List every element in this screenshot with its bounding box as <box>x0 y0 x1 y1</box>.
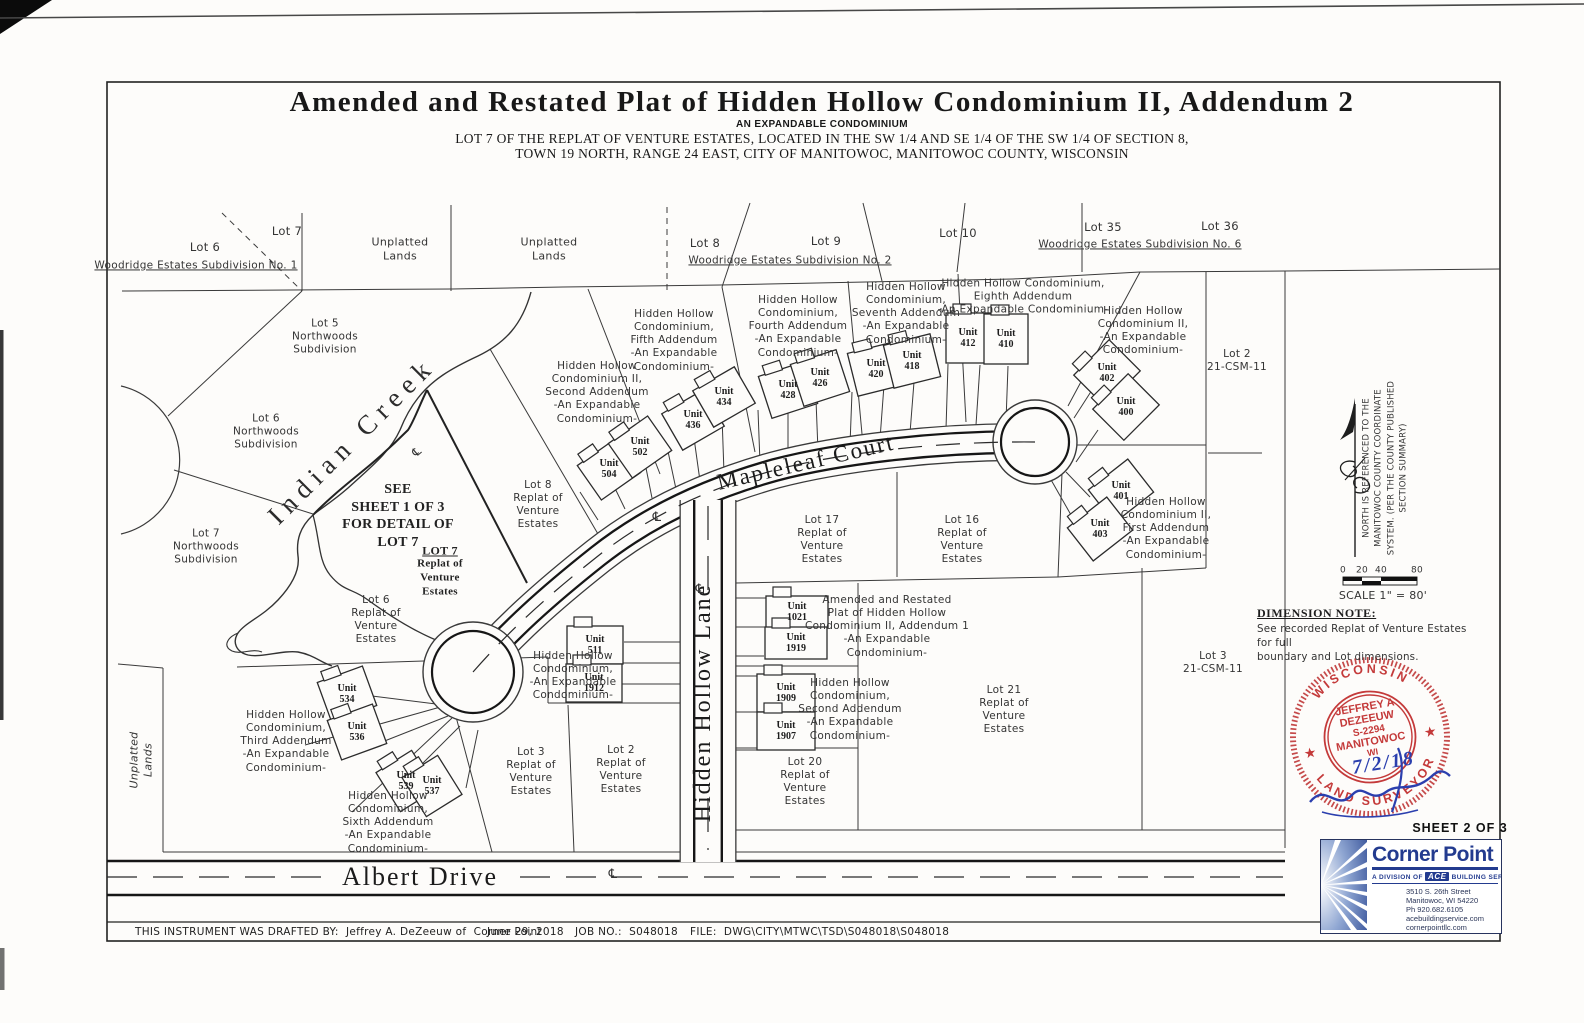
hh-expandable-label: Hidden Hollow Condominium, -An Expandabl… <box>530 650 617 703</box>
hh-fourth-addendum-label: Hidden Hollow Condominium, Fourth Addend… <box>749 294 848 360</box>
unit-label-534: Unit 534 <box>338 683 357 705</box>
logo-name: Corner Point <box>1372 844 1498 865</box>
unit-label-539: Unit 539 <box>397 770 416 792</box>
corner-point-logo-box: Corner Point A DIVISION OF ACE BUILDING … <box>1320 839 1502 934</box>
scale-tick-80: 80 <box>1411 565 1423 576</box>
lot8-woodridge-label: Lot 8 <box>690 236 720 250</box>
scale-tick-40: 40 <box>1375 565 1387 576</box>
unit-label-434: Unit 434 <box>715 386 734 408</box>
centerline-symbol-hidden-hollow: ℄ <box>696 582 705 598</box>
lot35-label: Lot 35 <box>1084 220 1122 234</box>
unit-label-420: Unit 420 <box>867 358 886 380</box>
north-note: NORTH IS REFERENCED TO THE MANITOWOC COU… <box>1360 381 1409 555</box>
unit-label-502: Unit 502 <box>631 436 650 458</box>
hh2-first-addendum-label: Hidden Hollow Condominium II, First Adde… <box>1121 496 1211 562</box>
centerline-symbol-mapleleaf: ℄ <box>653 510 662 526</box>
woodridge-no1-label: Woodridge Estates Subdivision No. 1 <box>94 259 297 272</box>
plat-title: Amended and Restated Plat of Hidden Holl… <box>290 86 1355 119</box>
lot21-replat-label: Lot 21 Replat of Venture Estates <box>979 684 1029 737</box>
ace-logo-badge: ACE <box>1425 872 1449 881</box>
unit-label-436: Unit 436 <box>684 409 703 431</box>
lot20-replat-label: Lot 20 Replat of Venture Estates <box>780 756 830 809</box>
unit-label-1909: Unit 1909 <box>776 682 796 704</box>
unit-label-426: Unit 426 <box>811 367 830 389</box>
lot17-replat-label: Lot 17 Replat of Venture Estates <box>797 514 847 567</box>
logo-address-city: Manitowoc, WI 54220 <box>1406 896 1498 905</box>
plat-subtitle-location-2: TOWN 19 NORTH, RANGE 24 EAST, CITY OF MA… <box>515 146 1129 162</box>
scale-text: SCALE 1" = 80' <box>1339 589 1427 603</box>
unit-label-1907: Unit 1907 <box>776 720 796 742</box>
woodridge-no2-label: Woodridge Estates Subdivision No. 2 <box>688 254 891 267</box>
unit-label-1919: Unit 1919 <box>786 632 806 654</box>
logo-address-web2: cornerpointllc.com <box>1406 923 1498 932</box>
dimension-note-title: DIMENSION NOTE: <box>1257 606 1467 621</box>
lot8-replat-label: Lot 8 Replat of Venture Estates <box>513 479 563 532</box>
lot3-replat-label: Lot 3 Replat of Venture Estates <box>506 746 556 799</box>
logo-address-web1: acebuildingservice.com <box>1406 914 1498 923</box>
unit-label-412: Unit 412 <box>959 327 978 349</box>
centerline-symbol-creek: ℄ <box>409 444 425 461</box>
sheet-number-label: SHEET 2 OF 3 <box>1412 821 1507 835</box>
lot2-csm-label: Lot 2 21-CSM-11 <box>1207 348 1267 374</box>
lot7-replat-title: LOT 7 <box>422 544 458 559</box>
lot10-label: Lot 10 <box>939 226 977 240</box>
unit-label-418: Unit 418 <box>903 350 922 372</box>
albert-drive-label: Albert Drive <box>342 861 498 894</box>
logo-rule <box>1372 867 1498 870</box>
unit-label-536: Unit 536 <box>348 721 367 743</box>
see-sheet-note: SEE SHEET 1 OF 3 FOR DETAIL OF LOT 7 <box>342 481 454 551</box>
dimension-note-body: See recorded Replat of Venture Estates f… <box>1257 623 1467 665</box>
lot6-woodridge-label: Lot 6 <box>190 240 220 254</box>
unit-label-403: Unit 403 <box>1091 518 1110 540</box>
lot6-replat-label: Lot 6 Replat of Venture Estates <box>351 594 401 647</box>
logo-address-phone: Ph 920.682.6105 <box>1406 905 1498 914</box>
lot6-northwoods-label: Lot 6 Northwoods Subdivision <box>233 412 299 451</box>
starburst-logo-icon <box>1321 840 1367 933</box>
plat-sheet: WISCONSIN LAND SURVEYOR ★ ★ JEFFREY ADEZ… <box>0 0 1584 1023</box>
logo-division-suffix: BUILDING SERVICE <box>1452 874 1501 881</box>
unplatted-lands-label-2: Unplatted Lands <box>521 235 578 263</box>
plat-subtitle-expandable: AN EXPANDABLE CONDOMINIUM <box>736 119 908 130</box>
scale-tick-0: 0 <box>1340 565 1346 576</box>
unit-label-428: Unit 428 <box>779 379 798 401</box>
hh-eighth-addendum-label: Hidden Hollow Condominium, Eighth Addend… <box>938 277 1109 316</box>
lot5-northwoods-label: Lot 5 Northwoods Subdivision <box>292 317 358 356</box>
lot16-replat-label: Lot 16 Replat of Venture Estates <box>937 514 987 567</box>
logo-address-street: 3510 S. 26th Street <box>1406 887 1498 896</box>
hh-third-addendum-label: Hidden Hollow Condominium, Third Addendu… <box>240 709 331 775</box>
lot7-northwoods-label: Lot 7 Northwoods Subdivision <box>173 527 239 566</box>
mapleleaf-court-label: Mapleleaf Court <box>714 429 897 498</box>
unit-label-400: Unit 400 <box>1117 396 1136 418</box>
hh-fifth-addendum-label: Hidden Hollow Condominium, Fifth Addendu… <box>630 308 717 374</box>
unit-label-410: Unit 410 <box>997 328 1016 350</box>
unit-label-504: Unit 504 <box>600 458 619 480</box>
footer-drafted-by: THIS INSTRUMENT WAS DRAFTED BY: Jeffrey … <box>135 926 542 938</box>
plat-subtitle-location-1: LOT 7 OF THE REPLAT OF VENTURE ESTATES, … <box>455 131 1188 147</box>
dimension-note: DIMENSION NOTE: See recorded Replat of V… <box>1257 606 1467 665</box>
amended-addendum1-label: Amended and Restated Plat of Hidden Holl… <box>805 594 969 660</box>
stamp-handwritten-date: 7/2/18 <box>1351 747 1417 780</box>
hh-sixth-addendum-label: Hidden Hollow Condominium, Sixth Addendu… <box>342 790 433 856</box>
hh2-expandable-label: Hidden Hollow Condominium II, -An Expand… <box>1098 305 1188 358</box>
footer-job-number: JOB NO.: S048018 <box>575 926 678 938</box>
scale-tick-20: 20 <box>1356 565 1368 576</box>
lot36-label: Lot 36 <box>1201 219 1239 233</box>
woodridge-no6-label: Woodridge Estates Subdivision No. 6 <box>1038 238 1241 251</box>
lot7-replat-label: Replat of Venture Estates <box>417 557 463 598</box>
hh-second-addendum-label: Hidden Hollow Condominium, Second Addend… <box>798 677 901 743</box>
footer-file-path: FILE: DWG\CITY\MTWC\TSD\S048018\S048018 <box>690 926 949 938</box>
logo-division-line: A DIVISION OF ACE BUILDING SERVICE <box>1372 872 1498 884</box>
footer-date: June 29, 2018 <box>487 926 564 938</box>
lot9-woodridge-label: Lot 9 <box>811 234 841 248</box>
lot7-woodridge-label: Lot 7 <box>272 224 302 238</box>
logo-division-prefix: A DIVISION OF <box>1372 874 1423 881</box>
unit-label-402: Unit 402 <box>1098 362 1117 384</box>
unplatted-lands-vertical-label: Unplatted Lands <box>127 732 155 789</box>
logo-address: 3510 S. 26th Street Manitowoc, WI 54220 … <box>1406 887 1498 932</box>
lot2-replat-label: Lot 2 Replat of Venture Estates <box>596 744 646 797</box>
hidden-hollow-lane-label: Hidden Hollow Lane <box>688 584 718 823</box>
lot3-csm-label: Lot 3 21-CSM-11 <box>1183 650 1243 676</box>
unplatted-lands-label-1: Unplatted Lands <box>372 235 429 263</box>
centerline-symbol-albert: ℄ <box>609 867 618 883</box>
